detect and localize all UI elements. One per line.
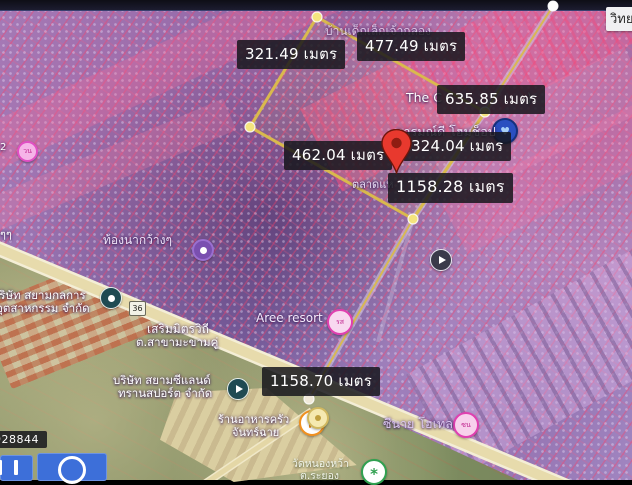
bar-glyph [14,460,18,475]
cutoff-place-card[interactable]: วิทย [606,7,632,31]
triangle-glyph [439,256,446,264]
place-label: จันทร์ฉาย [232,423,279,441]
triangle-glyph [236,385,243,393]
streetview-photo-icon[interactable] [430,249,452,271]
thai-glyph: ซน [461,422,471,429]
resort-icon[interactable]: รส [327,309,353,335]
distance-label: 635.85 เมตร [437,85,545,114]
reference-code-label: 928844 [0,431,47,448]
distance-label: 1158.70 เมตร [262,367,380,396]
vertex-handle[interactable] [312,12,322,22]
purple-place-icon[interactable] [192,239,214,261]
minor-road [378,219,413,342]
pin-body [382,130,411,174]
dot-glyph [315,415,321,421]
toolbar-button-circle[interactable] [37,453,107,481]
road-poi-icon[interactable] [307,407,329,429]
distance-label: 321.49 เมตร [237,40,345,69]
map-pin[interactable] [380,129,413,174]
photo-sphere-icon[interactable] [100,287,122,309]
edge-partial-label: 2 [0,142,6,153]
distance-label: 324.04 เมตร [403,132,511,161]
vertex-handle[interactable] [408,214,418,224]
distance-label: 1158.28 เมตร [388,173,513,203]
place-label: Aree resort [256,311,323,325]
thai-glyph: วน [23,148,32,155]
toolbar-button-left[interactable] [0,455,33,481]
distance-label: 462.04 เมตร [284,141,392,170]
dot-glyph [200,247,207,254]
distance-label: 477.49 เมตร [357,32,465,61]
route-36-shield-icon: 36 [129,301,146,316]
place-label: ต.ระยอง [300,467,339,484]
place-label: ทรานสปอร์ต จำกัด [118,385,212,403]
hotel-icon[interactable]: ซน [453,412,479,438]
temple-park-icon[interactable]: * [361,459,387,485]
map-canvas[interactable]: { "app": { "description_note": "satellit… [0,0,632,480]
place-label: ซีนาย โฮเทล [383,414,453,434]
place-label: ท้องนากว้างๆ [103,231,172,250]
thai-glyph: รส [336,319,344,326]
dot-glyph [108,295,115,302]
edge-partial-label: ๆๆ [0,225,12,243]
pin-center [391,138,401,148]
photo-icon[interactable] [227,378,249,400]
place-label: อุตสาหกรรม จำกัด [0,300,90,318]
pink-place-icon[interactable]: วน [17,141,38,162]
measure-start-handle[interactable] [548,1,558,11]
vertex-handle[interactable] [245,122,255,132]
bar-glyph [0,460,2,475]
place-label: ต.สาขามะขามคู่ [136,334,218,352]
